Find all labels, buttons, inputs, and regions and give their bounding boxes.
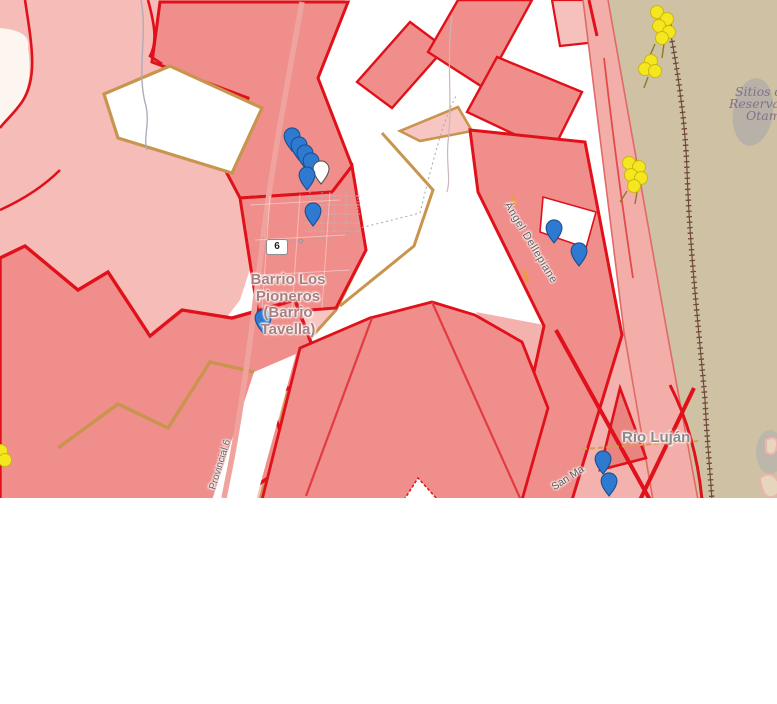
creek-blob-2 xyxy=(766,438,777,454)
yellow-marker xyxy=(628,180,641,193)
map-canvas xyxy=(0,0,777,498)
screenshot-root: 6 Barrio Los Pioneros (Barrio Tavella) Á… xyxy=(0,0,777,704)
legend: DELIMITACION CENTRO POBLADO SEGUN REGIST… xyxy=(0,498,777,704)
route-shield-6: 6 xyxy=(266,239,288,255)
yellow-marker xyxy=(649,65,662,78)
yellow-marker xyxy=(656,32,669,45)
map-view[interactable]: 6 Barrio Los Pioneros (Barrio Tavella) Á… xyxy=(0,0,777,498)
yellow-marker xyxy=(0,454,12,467)
